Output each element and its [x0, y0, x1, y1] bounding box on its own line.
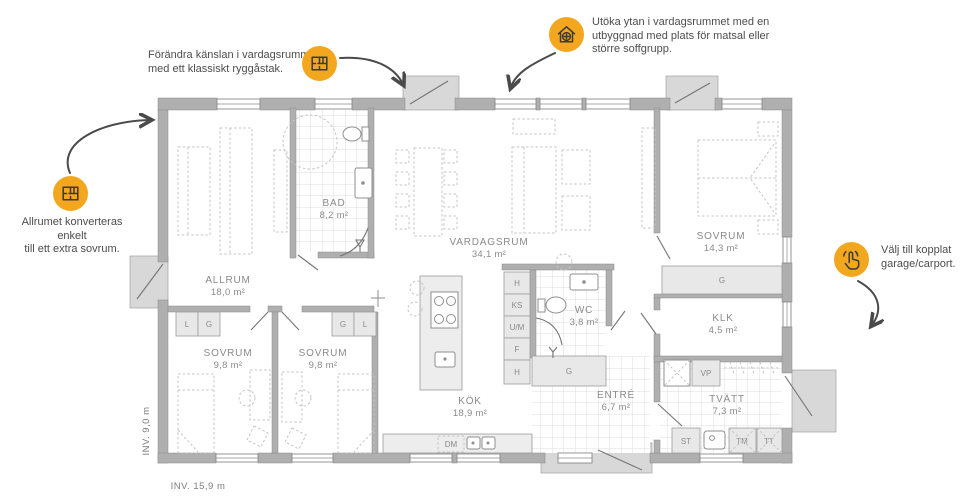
svg-text:SOVRUM: SOVRUM [697, 231, 746, 242]
annotation-ridge-roof: Förändra känslan i vardagsrummet med ett… [148, 49, 326, 76]
svg-text:34,1 m²: 34,1 m² [472, 249, 506, 260]
closet-label-l2: L [363, 320, 368, 329]
room-label-sovrum-left: SOVRUM 9,8 m² [204, 348, 253, 371]
floorplan-page: L G G L H KS U/M F H G G VP ST TM TT DM [0, 0, 960, 499]
arrow-allrum [68, 120, 150, 173]
svg-text:KÖK: KÖK [458, 395, 482, 407]
annotation-text-line: Välj till kopplat [881, 244, 960, 258]
svg-text:18,0 m²: 18,0 m² [211, 287, 245, 298]
svg-text:18,9 m²: 18,9 m² [453, 408, 487, 419]
hand-click-icon [834, 242, 869, 277]
svg-text:7,3 m²: 7,3 m² [713, 406, 742, 417]
house-plus-icon [549, 17, 584, 52]
floorplan-icon-badge [302, 46, 337, 81]
room-label-klk: KLK 4,5 m² [709, 313, 738, 336]
arrow-garage [858, 281, 878, 325]
annotation-text-line: med ett klassiskt ryggåstak. [148, 63, 326, 77]
svg-text:BAD: BAD [323, 198, 346, 209]
svg-text:ALLRUM: ALLRUM [205, 275, 250, 286]
annotation-garage: Välj till kopplat garage/carport. [881, 244, 960, 271]
annotation-text-line: utbyggnad med plats för matsal eller [592, 30, 787, 44]
closet-label-l1: L [185, 320, 190, 329]
svg-text:VARDAGSRUM: VARDAGSRUM [450, 237, 529, 248]
cabinet-label-um: U/M [510, 323, 525, 332]
floorplan-drawing: L G G L H KS U/M F H G G VP ST TM TT DM [0, 0, 960, 499]
svg-text:4,5 m²: 4,5 m² [709, 325, 738, 336]
cabinet-label-h1: H [514, 279, 520, 288]
annotation-extension: Utöka ytan i vardagsrummet med en utbygg… [592, 16, 787, 57]
svg-text:6,7 m²: 6,7 m² [602, 402, 631, 413]
room-label-kok: KÖK 18,9 m² [453, 395, 487, 419]
svg-text:8,2 m²: 8,2 m² [320, 210, 349, 221]
room-label-entre: ENTRÉ 6,7 m² [597, 388, 635, 413]
annotation-text-line: större soffgrupp. [592, 43, 787, 57]
room-label-bad: BAD 8,2 m² [320, 198, 349, 221]
floorplan-icon-badge-2 [53, 176, 88, 211]
svg-text:14,3 m²: 14,3 m² [704, 243, 738, 254]
floorplan-icon [302, 46, 337, 81]
annotation-text-line: Utöka ytan i vardagsrummet med en [592, 16, 787, 30]
annotation-allrum-convert: Allrumet konverteras enkelt till ett ext… [6, 216, 138, 257]
house-extension-icon-badge [549, 17, 584, 52]
arrow-extension [511, 53, 555, 87]
svg-text:ENTRÉ: ENTRÉ [597, 388, 635, 401]
label-st: ST [681, 437, 691, 446]
cabinet-label-f: F [515, 345, 520, 354]
room-label-sovrum-mid: SOVRUM 9,8 m² [299, 348, 348, 371]
arrow-ridge-roof [340, 58, 403, 84]
room-label-allrum: ALLRUM 18,0 m² [205, 275, 250, 298]
annotation-text-line: Allrumet konverteras enkelt [6, 216, 138, 243]
svg-text:WC: WC [575, 305, 593, 316]
closet-label-g-sovrum: G [719, 276, 725, 285]
svg-text:TVÄTT: TVÄTT [709, 393, 745, 405]
svg-text:9,8 m²: 9,8 m² [309, 360, 338, 371]
annotation-text-line: till ett extra sovrum. [6, 243, 138, 257]
annotation-text-line: garage/carport. [881, 258, 960, 272]
dimension-width: INV. 15,9 m [171, 481, 226, 492]
closet-label-g-wc: G [566, 367, 572, 376]
floorplan-icon [53, 176, 88, 211]
dimension-depth: INV. 9,0 m [141, 406, 152, 455]
svg-text:3,8 m²: 3,8 m² [570, 317, 599, 328]
cabinet-label-ks: KS [512, 301, 523, 310]
svg-text:9,8 m²: 9,8 m² [214, 360, 243, 371]
room-label-vardagsrum: VARDAGSRUM 34,1 m² [450, 237, 529, 260]
svg-text:SOVRUM: SOVRUM [299, 348, 348, 359]
hand-click-icon-badge [834, 242, 869, 277]
label-dm: DM [445, 440, 458, 449]
cabinet-label-h2: H [514, 368, 520, 377]
room-label-sovrum-master: SOVRUM 14,3 m² [697, 231, 746, 254]
svg-text:SOVRUM: SOVRUM [204, 348, 253, 359]
label-tt: TT [764, 437, 774, 446]
closet-label-g1: G [206, 320, 212, 329]
svg-text:KLK: KLK [712, 313, 733, 324]
label-vp: VP [701, 369, 712, 378]
closet-label-g2: G [340, 320, 346, 329]
annotation-text-line: Förändra känslan i vardagsrummet [148, 49, 326, 63]
